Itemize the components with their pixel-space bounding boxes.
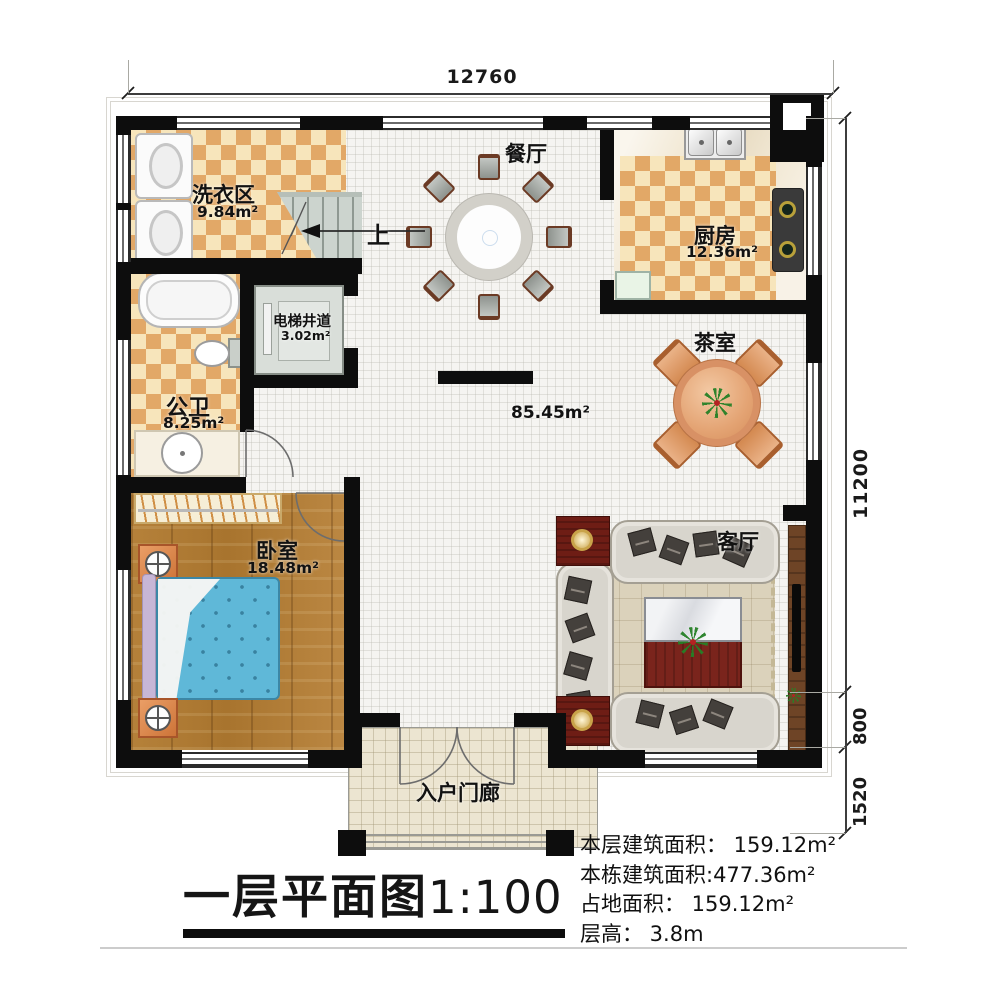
fridge <box>615 271 651 300</box>
wall <box>116 203 131 210</box>
window <box>116 135 131 203</box>
wall <box>806 275 822 363</box>
window <box>116 210 131 262</box>
tea-room-label: 茶室 <box>694 327 736 357</box>
nightstand-lamp <box>145 705 171 731</box>
dining-chair <box>546 226 572 248</box>
dining-chair <box>478 294 500 320</box>
porch-pillar <box>546 830 574 856</box>
window <box>690 116 770 130</box>
stove-burner <box>779 241 796 258</box>
porch-step <box>366 848 546 850</box>
sofa-pillow <box>692 530 719 557</box>
plan-title-text: 一层平面图 <box>183 858 428 927</box>
wall <box>806 116 822 167</box>
tv <box>792 584 801 672</box>
wall <box>116 750 182 768</box>
wall <box>600 130 614 200</box>
floor-plan-canvas: 12760 11200 800 1520 洗衣区 9.84m² 上 电梯井道 3… <box>0 0 1000 990</box>
tea-table-plant <box>702 388 732 418</box>
bed-headboard <box>142 574 156 702</box>
stove-burner <box>779 201 796 218</box>
wall <box>240 272 254 432</box>
dimension-guide <box>790 747 845 748</box>
wall <box>600 300 822 314</box>
wall <box>116 477 246 493</box>
wall <box>240 375 358 388</box>
wall <box>438 371 533 384</box>
kitchen-sink-basin <box>688 128 714 156</box>
washing-machine-1 <box>135 133 193 199</box>
dining-chair <box>406 226 432 248</box>
dimension-guide <box>806 118 845 119</box>
table-lamp <box>571 709 593 731</box>
living-room-label: 客厅 <box>717 526 759 556</box>
wardrobe <box>134 493 282 524</box>
hall-area: 85.45m² <box>511 403 590 423</box>
title-underline <box>183 929 565 938</box>
coffee-table-plant <box>678 627 708 657</box>
plan-title: 一层平面图 1:100 <box>183 858 563 927</box>
wall <box>344 272 358 296</box>
window <box>806 363 822 460</box>
dining-chair <box>478 154 500 180</box>
wall <box>116 116 131 135</box>
wall <box>240 272 358 285</box>
porch-pillar <box>338 830 366 856</box>
wall <box>543 116 587 130</box>
wall <box>116 262 131 340</box>
dimension-guide <box>128 60 129 93</box>
elevator-area: 3.02m² <box>281 328 330 343</box>
plan-scale: 1:100 <box>428 871 563 924</box>
window <box>806 167 822 275</box>
window <box>182 752 308 768</box>
info-line: 占地面积： 159.12m² <box>580 890 836 920</box>
window <box>116 570 131 700</box>
bathroom-area: 8.25m² <box>163 414 224 432</box>
washing-machine-2 <box>135 200 193 266</box>
dimension-line-top <box>128 93 833 95</box>
kitchen-area: 12.36m² <box>686 243 758 261</box>
wall <box>300 116 383 130</box>
dim-top-width: 12760 <box>440 66 524 88</box>
wall <box>345 713 362 750</box>
window <box>587 116 652 130</box>
info-line: 本层建筑面积： 159.12m² <box>580 831 836 861</box>
sofa-pillow <box>564 576 592 604</box>
dimension-guide <box>790 692 845 693</box>
dim-right-height: 11200 <box>850 424 872 519</box>
window <box>116 340 131 475</box>
dimension-guide <box>833 60 834 93</box>
wall <box>548 713 566 750</box>
bathtub <box>138 272 240 328</box>
stair-up-label: 上 <box>367 216 390 250</box>
dining-label: 餐厅 <box>505 138 547 168</box>
wall <box>548 750 645 768</box>
window <box>383 116 543 130</box>
bathroom-sink <box>161 432 203 474</box>
porch-step <box>366 841 546 843</box>
wall <box>783 505 822 521</box>
porch-label: 入户门廊 <box>416 777 500 807</box>
laundry-area: 9.84m² <box>197 203 258 221</box>
toilet-bowl <box>194 340 230 367</box>
porch-step <box>366 834 546 836</box>
info-line: 本栋建筑面积:477.36m² <box>580 861 836 891</box>
dim-right-porch: 1520 <box>850 757 871 827</box>
bedroom-area: 18.48m² <box>247 559 319 577</box>
table-lamp <box>571 529 593 551</box>
kitchen-sink-basin <box>716 128 742 156</box>
dimension-line-right <box>845 118 847 833</box>
dining-table-top <box>457 205 521 269</box>
corner-plant <box>786 688 801 703</box>
building-info: 本层建筑面积： 159.12m² 本栋建筑面积:477.36m² 占地面积： 1… <box>580 831 836 949</box>
wall <box>757 750 822 768</box>
info-line: 层高： 3.8m <box>580 920 836 950</box>
window <box>645 752 757 768</box>
window <box>177 116 300 130</box>
wall <box>652 116 690 130</box>
dim-right-step: 800 <box>850 697 871 745</box>
